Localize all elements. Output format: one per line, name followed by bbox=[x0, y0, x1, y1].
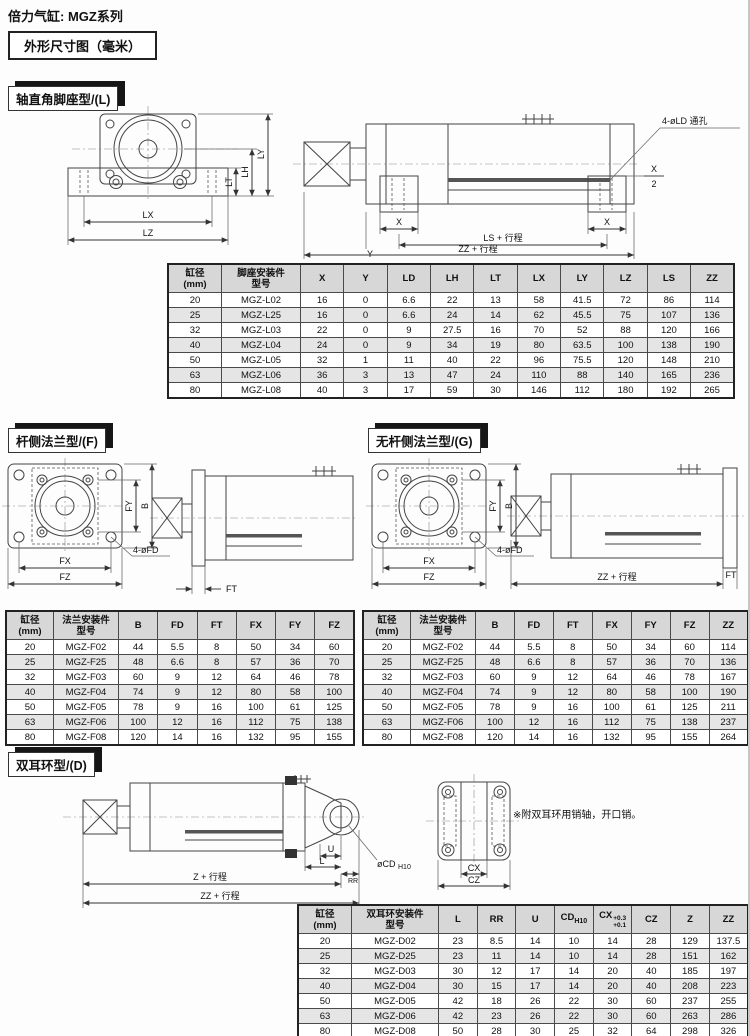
table-cell: 14 bbox=[555, 964, 594, 979]
table-cell: 10 bbox=[555, 934, 594, 949]
callout-label-cd-tolerance: H10 bbox=[398, 864, 411, 871]
column-header: L bbox=[439, 905, 478, 934]
table-cell: 70 bbox=[315, 655, 354, 670]
table-cell: 9 bbox=[158, 685, 197, 700]
table-cell: 40 bbox=[363, 685, 411, 700]
table-cell: 136 bbox=[691, 308, 734, 323]
table-cell: 120 bbox=[604, 353, 647, 368]
table-row: 20MGZ-L021606.622135841.57286114 bbox=[168, 293, 734, 308]
column-header: U bbox=[516, 905, 555, 934]
catalog-page: 倍力气缸: MGZ系列 外形尺寸图（毫米） 轴直角脚座型/(L) bbox=[0, 0, 750, 1036]
dim-label-fy: FY bbox=[488, 500, 498, 512]
table-cell: 8 bbox=[553, 640, 592, 655]
table-cell: 59 bbox=[431, 383, 474, 399]
rod-flange-side-view-drawing: FT bbox=[148, 456, 360, 606]
column-header: ZZ bbox=[709, 611, 748, 640]
table-cell: 155 bbox=[315, 730, 354, 746]
table-row: 25MGZ-F25486.68573670136 bbox=[363, 655, 748, 670]
table-cell: 32 bbox=[363, 670, 411, 685]
table-cell: 25 bbox=[168, 308, 222, 323]
table-cell: MGZ-D08 bbox=[352, 1024, 439, 1036]
table-cell: 70 bbox=[670, 655, 709, 670]
table-cell: 44 bbox=[476, 640, 515, 655]
table-row: 40MGZ-L04240934198063.5100138190 bbox=[168, 338, 734, 353]
table-cell: 32 bbox=[301, 353, 344, 368]
table-cell: 190 bbox=[709, 685, 748, 700]
column-header: LS bbox=[647, 264, 690, 293]
table-row: 32MGZ-F0360912644678167 bbox=[363, 670, 748, 685]
table-cell: 100 bbox=[315, 685, 354, 700]
table-cell: 0 bbox=[344, 293, 387, 308]
column-header: FX bbox=[236, 611, 275, 640]
dim-label-ly: LY bbox=[256, 149, 266, 159]
table-cell: 40 bbox=[301, 383, 344, 399]
column-header: CX+0.3+0.1 bbox=[593, 905, 632, 934]
table-cell: 100 bbox=[476, 715, 515, 730]
table-cell: 9 bbox=[514, 700, 553, 715]
table-cell: 28 bbox=[632, 949, 671, 964]
table-cell: 23 bbox=[477, 1009, 516, 1024]
section-header-head-flange: 无杆侧法兰型/(G) bbox=[368, 428, 481, 453]
table-cell: 167 bbox=[709, 670, 748, 685]
table-cell: 8.5 bbox=[477, 934, 516, 949]
table-cell: 78 bbox=[670, 670, 709, 685]
table-row: 20MGZ-F02445.58503460 bbox=[6, 640, 354, 655]
column-header: CZ bbox=[632, 905, 671, 934]
table-cell: 12 bbox=[197, 670, 236, 685]
column-header: RR bbox=[477, 905, 516, 934]
table-cell: 22 bbox=[301, 323, 344, 338]
table-cell: 57 bbox=[236, 655, 275, 670]
section-header-label: 杆侧法兰型/(F) bbox=[8, 428, 106, 453]
table-cell: 114 bbox=[691, 293, 734, 308]
table-row: 32MGZ-F0360912644678 bbox=[6, 670, 354, 685]
table-cell: 16 bbox=[301, 308, 344, 323]
foot-mount-front-view-drawing: LT LH LY LX LZ bbox=[58, 104, 290, 260]
table-cell: 17 bbox=[387, 383, 430, 399]
table-cell: 3 bbox=[344, 368, 387, 383]
table-cell: 40 bbox=[168, 338, 222, 353]
dim-label-x-half-numerator: X bbox=[651, 164, 657, 174]
table-cell: 80 bbox=[363, 730, 411, 746]
table-cell: 192 bbox=[647, 383, 690, 399]
table-cell: 63 bbox=[6, 715, 54, 730]
table-cell: 28 bbox=[632, 934, 671, 949]
column-header: Z bbox=[671, 905, 710, 934]
table-cell: 61 bbox=[631, 700, 670, 715]
table-cell: 162 bbox=[709, 949, 748, 964]
column-header: FD bbox=[514, 611, 553, 640]
section-header-label: 无杆侧法兰型/(G) bbox=[368, 428, 481, 453]
table-cell: 1 bbox=[344, 353, 387, 368]
table-cell: 0 bbox=[344, 308, 387, 323]
table-cell: 223 bbox=[709, 979, 748, 994]
table-cell: 34 bbox=[631, 640, 670, 655]
head-flange-dimension-table: 缸径 (mm)法兰安装件 型号BFDFTFXFYFZZZ20MGZ-F02445… bbox=[362, 610, 749, 746]
table-cell: 125 bbox=[315, 700, 354, 715]
table-cell: 107 bbox=[647, 308, 690, 323]
table-row: 20MGZ-D02238.514101428129137.5 bbox=[298, 934, 748, 949]
table-cell: 120 bbox=[476, 730, 515, 746]
table-cell: 14 bbox=[158, 730, 197, 746]
table-cell: 11 bbox=[477, 949, 516, 964]
table-cell: MGZ-L06 bbox=[222, 368, 301, 383]
table-cell: 63 bbox=[168, 368, 222, 383]
table-cell: 36 bbox=[301, 368, 344, 383]
table-cell: 13 bbox=[474, 293, 517, 308]
table-cell: 185 bbox=[671, 964, 710, 979]
table-cell: 80 bbox=[168, 383, 222, 399]
table-cell: MGZ-D04 bbox=[352, 979, 439, 994]
table-cell: 78 bbox=[119, 700, 158, 715]
table-cell: 14 bbox=[516, 949, 555, 964]
table-cell: 138 bbox=[647, 338, 690, 353]
table-cell: 45.5 bbox=[561, 308, 604, 323]
table-cell: 32 bbox=[6, 670, 54, 685]
table-cell: 60 bbox=[632, 994, 671, 1009]
table-row: 25MGZ-D25231114101428151162 bbox=[298, 949, 748, 964]
table-cell: 86 bbox=[647, 293, 690, 308]
dim-label-lh: LH bbox=[240, 166, 250, 178]
dim-label-lx: LX bbox=[142, 210, 153, 220]
dimensions: ZZ + 行程 FT bbox=[511, 540, 737, 589]
column-header: LX bbox=[517, 264, 560, 293]
column-header: 双耳环安装件 型号 bbox=[352, 905, 439, 934]
table-cell: 30 bbox=[516, 1024, 555, 1036]
column-header: 脚座安装件 型号 bbox=[222, 264, 301, 293]
column-header: 法兰安装件 型号 bbox=[411, 611, 476, 640]
table-cell: 22 bbox=[474, 353, 517, 368]
table-cell: 63 bbox=[298, 1009, 352, 1024]
table-cell: 95 bbox=[631, 730, 670, 746]
table-cell: 40 bbox=[298, 979, 352, 994]
table-cell: 14 bbox=[474, 308, 517, 323]
table-row: 40MGZ-D04301517142040208223 bbox=[298, 979, 748, 994]
cylinder-body bbox=[551, 464, 723, 558]
table-row: 63MGZ-L0636313472411088140165236 bbox=[168, 368, 734, 383]
dimensions: U L RR øCD H10 Z + 行程 ZZ + 行程 bbox=[83, 826, 411, 908]
table-cell: 0 bbox=[344, 338, 387, 353]
table-cell: 125 bbox=[670, 700, 709, 715]
clevis-pin-note: ※附双耳环用销轴，开口销。 bbox=[513, 806, 641, 821]
table-cell: 40 bbox=[431, 353, 474, 368]
header-row: 缸径 (mm)法兰安装件 型号BFDFTFXFYFZZZ bbox=[363, 611, 748, 640]
table-cell: 3 bbox=[344, 383, 387, 399]
table-cell: 25 bbox=[6, 655, 54, 670]
table-cell: 80 bbox=[517, 338, 560, 353]
table-cell: MGZ-L05 bbox=[222, 353, 301, 368]
table-cell: 208 bbox=[671, 979, 710, 994]
table-cell: 10 bbox=[555, 949, 594, 964]
table-cell: 16 bbox=[474, 323, 517, 338]
table-cell: 32 bbox=[298, 964, 352, 979]
table-cell: 120 bbox=[119, 730, 158, 746]
table-cell: 24 bbox=[431, 308, 474, 323]
table-cell: 75.5 bbox=[561, 353, 604, 368]
table-cell: MGZ-L02 bbox=[222, 293, 301, 308]
table-cell: 26 bbox=[516, 994, 555, 1009]
table-cell: 48 bbox=[476, 655, 515, 670]
dim-label-u: U bbox=[328, 844, 335, 854]
table-cell: 136 bbox=[709, 655, 748, 670]
table-cell: MGZ-F02 bbox=[411, 640, 476, 655]
table-cell: 28 bbox=[477, 1024, 516, 1036]
table-cell: 146 bbox=[517, 383, 560, 399]
table-cell: 12 bbox=[477, 964, 516, 979]
table-cell: MGZ-F08 bbox=[411, 730, 476, 746]
column-header: ZZ bbox=[709, 905, 748, 934]
table-cell: 120 bbox=[647, 323, 690, 338]
dim-label-y: Y bbox=[367, 249, 373, 259]
table-cell: 57 bbox=[592, 655, 631, 670]
table-row: 32MGZ-L03220927.516705288120166 bbox=[168, 323, 734, 338]
table-cell: MGZ-D03 bbox=[352, 964, 439, 979]
table-cell: 75 bbox=[604, 308, 647, 323]
table-cell: 23 bbox=[439, 934, 478, 949]
table-cell: 22 bbox=[555, 994, 594, 1009]
column-header: FT bbox=[197, 611, 236, 640]
table-cell: 180 bbox=[604, 383, 647, 399]
table-cell: 42 bbox=[439, 1009, 478, 1024]
table-cell: 151 bbox=[671, 949, 710, 964]
table-cell: 30 bbox=[439, 964, 478, 979]
table-cell: MGZ-F08 bbox=[54, 730, 119, 746]
column-header: FZ bbox=[315, 611, 354, 640]
dim-label-fx: FX bbox=[59, 556, 71, 566]
table-cell: 100 bbox=[670, 685, 709, 700]
table-cell: 47 bbox=[431, 368, 474, 383]
column-header: LY bbox=[561, 264, 604, 293]
table-cell: 72 bbox=[604, 293, 647, 308]
table-cell: 40 bbox=[632, 964, 671, 979]
table-cell: 58 bbox=[631, 685, 670, 700]
column-header: FY bbox=[276, 611, 315, 640]
table-cell: 96 bbox=[517, 353, 560, 368]
flange bbox=[723, 468, 737, 568]
dim-label-x-right: X bbox=[604, 217, 610, 227]
table-cell: 27.5 bbox=[431, 323, 474, 338]
table-cell: 32 bbox=[593, 1024, 632, 1036]
header-row: 缸径 (mm)双耳环安装件 型号LRRUCDH10CX+0.3+0.1CZZZZ bbox=[298, 905, 748, 934]
clevis-side-view-drawing: U L RR øCD H10 Z + 行程 ZZ + 行程 bbox=[55, 770, 455, 918]
column-header: LT bbox=[474, 264, 517, 293]
table-cell: 64 bbox=[236, 670, 275, 685]
table-cell: 32 bbox=[168, 323, 222, 338]
table-cell: 74 bbox=[119, 685, 158, 700]
table-cell: 114 bbox=[709, 640, 748, 655]
table-cell: 16 bbox=[197, 700, 236, 715]
table-cell: MGZ-F04 bbox=[54, 685, 119, 700]
table-cell: 286 bbox=[709, 1009, 748, 1024]
table-cell: 17 bbox=[516, 979, 555, 994]
centerlines bbox=[426, 774, 522, 868]
table-cell: 95 bbox=[276, 730, 315, 746]
table-cell: 50 bbox=[298, 994, 352, 1009]
table-row: 80MGZ-F08120141613295155264 bbox=[363, 730, 748, 746]
table-cell: 30 bbox=[593, 994, 632, 1009]
table-cell: 197 bbox=[709, 964, 748, 979]
table-cell: 112 bbox=[592, 715, 631, 730]
dim-label-ft: FT bbox=[726, 570, 737, 580]
table-cell: 24 bbox=[474, 368, 517, 383]
dimensions: FT bbox=[176, 566, 237, 594]
dimension-diagram-box: 外形尺寸图（毫米） bbox=[8, 31, 157, 60]
table-cell: 166 bbox=[691, 323, 734, 338]
centerlines bbox=[366, 458, 494, 554]
table-cell: 25 bbox=[298, 949, 352, 964]
table-cell: 9 bbox=[158, 670, 197, 685]
dim-label-ft: FT bbox=[226, 584, 237, 594]
table-cell: 62 bbox=[517, 308, 560, 323]
table-cell: 25 bbox=[555, 1024, 594, 1036]
table-cell: 80 bbox=[298, 1024, 352, 1036]
table-cell: 210 bbox=[691, 353, 734, 368]
column-header: Y bbox=[344, 264, 387, 293]
table-cell: 26 bbox=[516, 1009, 555, 1024]
table-cell: 74 bbox=[476, 685, 515, 700]
dim-label-fx: FX bbox=[423, 556, 435, 566]
table-cell: 20 bbox=[363, 640, 411, 655]
table-cell: 237 bbox=[709, 715, 748, 730]
table-cell: 60 bbox=[476, 670, 515, 685]
table-cell: 80 bbox=[236, 685, 275, 700]
table-cell: 264 bbox=[709, 730, 748, 746]
table-cell: 23 bbox=[439, 949, 478, 964]
column-header: FT bbox=[553, 611, 592, 640]
table-cell: 60 bbox=[119, 670, 158, 685]
column-header: ZZ bbox=[691, 264, 734, 293]
table-cell: 64 bbox=[592, 670, 631, 685]
table-cell: 14 bbox=[593, 934, 632, 949]
table-cell: 9 bbox=[387, 338, 430, 353]
table-cell: MGZ-F25 bbox=[411, 655, 476, 670]
table-cell: 12 bbox=[158, 715, 197, 730]
column-header: X bbox=[301, 264, 344, 293]
table-cell: 34 bbox=[431, 338, 474, 353]
dim-label-zz-stroke: ZZ + 行程 bbox=[200, 890, 239, 901]
centerlines bbox=[2, 458, 130, 554]
table-cell: 61 bbox=[276, 700, 315, 715]
column-header: CDH10 bbox=[555, 905, 594, 934]
table-cell: MGZ-F25 bbox=[54, 655, 119, 670]
table-cell: 263 bbox=[671, 1009, 710, 1024]
table-cell: 46 bbox=[631, 670, 670, 685]
dim-label-l: L bbox=[319, 856, 324, 866]
table-cell: 165 bbox=[647, 368, 690, 383]
table-cell: MGZ-D25 bbox=[352, 949, 439, 964]
header-row: 缸径 (mm)脚座安装件 型号XYLDLHLTLXLYLZLSZZ bbox=[168, 264, 734, 293]
table-cell: 40 bbox=[6, 685, 54, 700]
table-cell: 16 bbox=[197, 730, 236, 746]
cylinder-body bbox=[366, 114, 634, 204]
table-cell: 112 bbox=[561, 383, 604, 399]
column-header: FY bbox=[631, 611, 670, 640]
table-cell: 298 bbox=[671, 1024, 710, 1036]
table-cell: 100 bbox=[592, 700, 631, 715]
table-cell: 6.6 bbox=[387, 308, 430, 323]
table-cell: 75 bbox=[276, 715, 315, 730]
column-header: FX bbox=[592, 611, 631, 640]
table-cell: 211 bbox=[709, 700, 748, 715]
table-cell: 36 bbox=[631, 655, 670, 670]
table-row: 25MGZ-L251606.624146245.575107136 bbox=[168, 308, 734, 323]
table-cell: 100 bbox=[604, 338, 647, 353]
dim-label-lt: LT bbox=[224, 177, 234, 187]
cylinder-body bbox=[130, 775, 311, 851]
clevis-dimension-table: 缸径 (mm)双耳环安装件 型号LRRUCDH10CX+0.3+0.1CZZZZ… bbox=[297, 904, 749, 1036]
table-row: 80MGZ-D08502830253264298326 bbox=[298, 1024, 748, 1036]
table-cell: 58 bbox=[517, 293, 560, 308]
table-cell: MGZ-F03 bbox=[54, 670, 119, 685]
table-cell: 5.5 bbox=[158, 640, 197, 655]
table-cell: 20 bbox=[593, 964, 632, 979]
table-cell: 70 bbox=[517, 323, 560, 338]
table-row: 32MGZ-D03301217142040185197 bbox=[298, 964, 748, 979]
table-cell: MGZ-F04 bbox=[411, 685, 476, 700]
dim-label-zz-stroke: ZZ + 行程 bbox=[597, 571, 636, 582]
table-cell: 137.5 bbox=[709, 934, 748, 949]
table-cell: MGZ-F05 bbox=[411, 700, 476, 715]
table-cell: 60 bbox=[315, 640, 354, 655]
table-cell: 112 bbox=[236, 715, 275, 730]
dim-label-x-left: X bbox=[396, 217, 402, 227]
column-header: B bbox=[476, 611, 515, 640]
dim-label-lz: LZ bbox=[143, 228, 154, 238]
table-cell: 9 bbox=[514, 670, 553, 685]
foot-mount-side-view-drawing: 4-øLD 通孔 X Y LS + 行程 ZZ + 行程 X X 2 bbox=[288, 102, 750, 260]
table-cell: 17 bbox=[516, 964, 555, 979]
table-cell: 138 bbox=[670, 715, 709, 730]
table-cell: 58 bbox=[276, 685, 315, 700]
table-cell: 14 bbox=[555, 979, 594, 994]
table-cell: 9 bbox=[158, 700, 197, 715]
callout-label-cd-hole: øCD bbox=[377, 859, 396, 869]
table-cell: 6.6 bbox=[514, 655, 553, 670]
table-cell: 16 bbox=[553, 730, 592, 746]
table-cell: 42 bbox=[439, 994, 478, 1009]
table-cell: 30 bbox=[593, 1009, 632, 1024]
table-cell: 80 bbox=[6, 730, 54, 746]
column-header: B bbox=[119, 611, 158, 640]
table-cell: MGZ-D02 bbox=[352, 934, 439, 949]
table-cell: MGZ-L04 bbox=[222, 338, 301, 353]
page-title: 倍力气缸: MGZ系列 bbox=[8, 6, 123, 25]
table-cell: 129 bbox=[671, 934, 710, 949]
table-row: 63MGZ-F06100121611275138237 bbox=[363, 715, 748, 730]
column-header: LD bbox=[387, 264, 430, 293]
column-header: FD bbox=[158, 611, 197, 640]
table-row: 25MGZ-F25486.68573670 bbox=[6, 655, 354, 670]
dim-label-x-half-denominator: 2 bbox=[651, 179, 656, 189]
table-cell: 6.6 bbox=[158, 655, 197, 670]
header-row: 缸径 (mm)法兰安装件 型号BFDFTFXFYFZ bbox=[6, 611, 354, 640]
table-cell: 30 bbox=[474, 383, 517, 399]
table-cell: 16 bbox=[553, 700, 592, 715]
table-cell: 88 bbox=[561, 368, 604, 383]
through-hole-callout: 4-øLD 通孔 bbox=[610, 116, 740, 180]
table-cell: MGZ-F02 bbox=[54, 640, 119, 655]
table-cell: MGZ-L03 bbox=[222, 323, 301, 338]
table-cell: 5.5 bbox=[514, 640, 553, 655]
table-cell: 12 bbox=[514, 715, 553, 730]
dim-label-zz-stroke: ZZ + 行程 bbox=[458, 243, 497, 254]
dim-label-cx: CX bbox=[468, 863, 481, 873]
column-header: LZ bbox=[604, 264, 647, 293]
foot-mount-dimension-table: 缸径 (mm)脚座安装件 型号XYLDLHLTLXLYLZLSZZ20MGZ-L… bbox=[167, 263, 735, 399]
table-cell: 100 bbox=[119, 715, 158, 730]
table-cell: 36 bbox=[276, 655, 315, 670]
table-cell: 60 bbox=[632, 1009, 671, 1024]
